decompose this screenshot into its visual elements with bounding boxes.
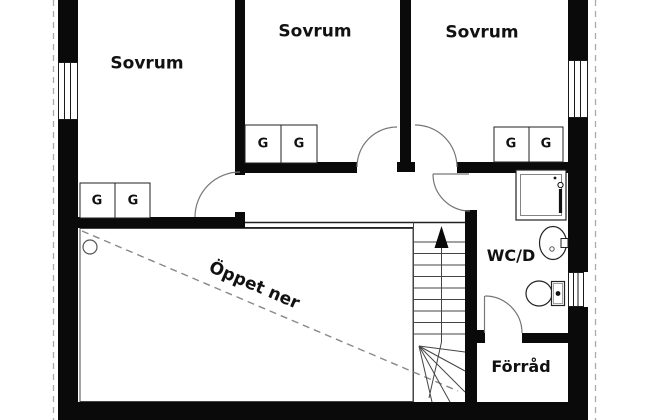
stairs	[414, 226, 465, 402]
door-arc-storage	[485, 296, 523, 333]
washbasin-icon	[540, 227, 569, 260]
floor-plan-drawing	[0, 0, 650, 420]
door-arc-bedroom3	[415, 125, 457, 167]
stair-treads	[414, 242, 465, 334]
shower-icon	[516, 170, 566, 220]
room-label-storage: Förråd	[491, 359, 550, 375]
window-icon-wc	[569, 273, 584, 307]
stair-winder-treads	[419, 346, 465, 402]
wardrobe-label: G	[541, 138, 552, 151]
door-arc-bedroom1	[195, 172, 240, 217]
column-icon	[83, 240, 97, 254]
room-label-wc: WC/D	[487, 248, 536, 264]
void-dashed-line	[82, 231, 458, 391]
room-label-bedroom2: Sovrum	[278, 24, 351, 41]
room-label-bedroom3: Sovrum	[445, 25, 518, 42]
room-label-bedroom1: Sovrum	[110, 56, 183, 73]
wardrobe-label: G	[294, 138, 305, 151]
window-icon-bedroom3	[569, 61, 588, 118]
wardrobe-label: G	[128, 195, 139, 208]
floor-plan: Sovrum Sovrum Sovrum G G G G G G WC/D Fö…	[0, 0, 650, 420]
wardrobe-box-bedroom2	[245, 125, 317, 163]
door-arc-wc	[433, 174, 470, 211]
void-open-below	[80, 223, 458, 403]
stairs-up-arrow-icon	[435, 226, 449, 248]
bathroom-fixtures	[516, 170, 568, 306]
wardrobe-label: G	[506, 138, 517, 151]
toilet-icon	[526, 281, 565, 306]
window-icon-bedroom1	[59, 63, 78, 120]
wardrobe-box-bedroom1	[80, 183, 150, 218]
railing	[245, 223, 465, 228]
wardrobe-box-bedroom3	[494, 127, 563, 162]
wardrobe-label: G	[258, 138, 269, 151]
wardrobe-label: G	[92, 195, 103, 208]
door-arc-bedroom2	[357, 127, 397, 167]
